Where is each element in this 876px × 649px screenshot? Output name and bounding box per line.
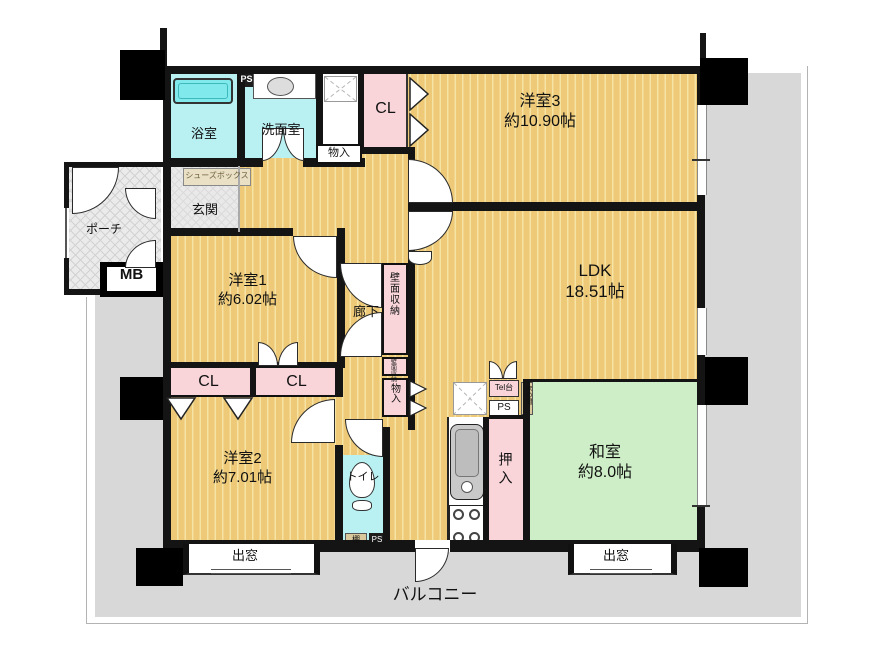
label-cl-left: CL	[167, 372, 250, 392]
bay-window-sill	[211, 569, 291, 574]
label-hekimen-2: 壁面収納	[388, 358, 396, 382]
wall-cl-bottom	[358, 147, 408, 154]
washstand	[253, 73, 316, 99]
burner-icon	[453, 509, 464, 520]
fridge-space	[453, 382, 487, 415]
label-yoshitsu1: 洋室1 約6.02帖	[175, 272, 320, 310]
wall-washroom-right	[316, 74, 323, 146]
room-size: 約6.02帖	[175, 291, 320, 310]
label-ldk: LDK 18.51帖	[500, 260, 690, 303]
pillar	[120, 50, 165, 100]
label-cl-mid: CL	[256, 372, 337, 392]
wall-oshiire-top	[489, 415, 523, 419]
wall-yoshitsu3-ldk	[415, 202, 697, 211]
door-arc-ldk-leaf	[408, 251, 432, 265]
cross-mark-icon	[454, 383, 486, 414]
cross-mark-icon	[325, 77, 356, 101]
window-tick	[692, 159, 710, 161]
wall-bath-bottom-a	[163, 158, 263, 167]
label-demado-left: 出窓	[215, 548, 275, 564]
floor-plan: 洋室3 約10.90帖 LDK 18.51帖 和室 約8.0帖 洋室1 約6.0…	[0, 0, 876, 649]
site-boundary-right	[807, 66, 808, 624]
wall-yoshitsu1-top	[163, 228, 293, 236]
label-shoebox: シューズボックス	[184, 171, 250, 181]
wall-top	[163, 66, 705, 74]
pillar	[136, 548, 183, 586]
folding-door-cl-left	[166, 397, 254, 422]
label-ps-toilet: PS	[369, 535, 385, 545]
room-size: 18.51帖	[500, 281, 690, 302]
room-size: 約7.01帖	[170, 469, 315, 488]
bathtub	[173, 78, 233, 104]
pillar	[699, 548, 748, 587]
label-cl-top: CL	[363, 99, 408, 119]
pillar	[700, 58, 748, 105]
room-name: 洋室2	[170, 450, 315, 469]
washbasin-icon	[267, 77, 294, 96]
label-washitsu: 和室 約8.0帖	[545, 443, 665, 483]
burner-icon	[469, 509, 480, 520]
pillar	[705, 357, 748, 405]
room-name: LDK	[500, 260, 690, 281]
label-tana: 棚	[345, 535, 367, 545]
label-ps-top: PS	[238, 74, 255, 85]
wall-bath-divider	[237, 74, 245, 162]
label-bath: 浴室	[173, 126, 235, 142]
kitchen-sink	[450, 424, 484, 500]
window-tick	[692, 505, 710, 507]
room-size: 約10.90帖	[440, 112, 640, 132]
label-monoire-top: 物入	[317, 147, 361, 161]
folding-door-monoire	[409, 380, 429, 417]
site-boundary-left	[86, 297, 87, 624]
label-porch: ポーチ	[76, 222, 132, 237]
toilet-tank-icon	[352, 500, 372, 511]
label-ps-kitchen: PS	[489, 402, 519, 415]
site-boundary-bottom	[86, 623, 808, 624]
balcony-right-strip	[705, 73, 801, 617]
washitsu-ldk-line	[530, 379, 697, 382]
label-washroom: 洗面室	[246, 122, 316, 138]
label-monoire-mid: 物入	[387, 383, 400, 403]
room-name: 洋室1	[175, 272, 320, 291]
sink-basin	[455, 429, 479, 477]
boundary-stub-right	[700, 33, 706, 61]
window-washitsu	[697, 405, 707, 505]
kitchen-edge-line	[447, 417, 449, 548]
room-size: 約8.0帖	[545, 463, 665, 483]
label-balcony: バルコニー	[360, 584, 510, 605]
bathtub-inner	[178, 83, 228, 99]
folding-door-cl-top	[409, 77, 431, 147]
label-yoshitsu2: 洋室2 約7.01帖	[170, 450, 315, 488]
label-hekimen-1: 壁面収納	[386, 272, 399, 316]
label-mb: MB	[107, 266, 156, 285]
label-genkan: 玄関	[178, 202, 232, 218]
label-yoshitsu3: 洋室3 約10.90帖	[440, 92, 640, 132]
label-demado-right: 出窓	[586, 548, 646, 564]
label-toilet: トイレ	[343, 471, 383, 485]
room-name: 和室	[545, 443, 665, 463]
wall-oshiire-left	[483, 417, 489, 548]
label-oshiire: 押入	[496, 452, 514, 488]
washer-pan	[324, 76, 357, 102]
room-name: 洋室3	[440, 92, 640, 112]
wall-yoshitsu2-right-b	[335, 445, 343, 545]
window-yoshitsu3	[697, 105, 707, 195]
window-ldk	[697, 308, 707, 355]
pillar	[120, 377, 163, 420]
wall-cl-row-top	[163, 362, 345, 368]
wall-toilet-right	[383, 427, 390, 540]
faucet-icon	[461, 481, 473, 493]
label-tokonoma: 床の間	[523, 385, 531, 405]
bay-window-sill	[590, 569, 652, 574]
label-tel: Tel台	[489, 383, 519, 393]
porch-opening-line	[65, 208, 67, 258]
